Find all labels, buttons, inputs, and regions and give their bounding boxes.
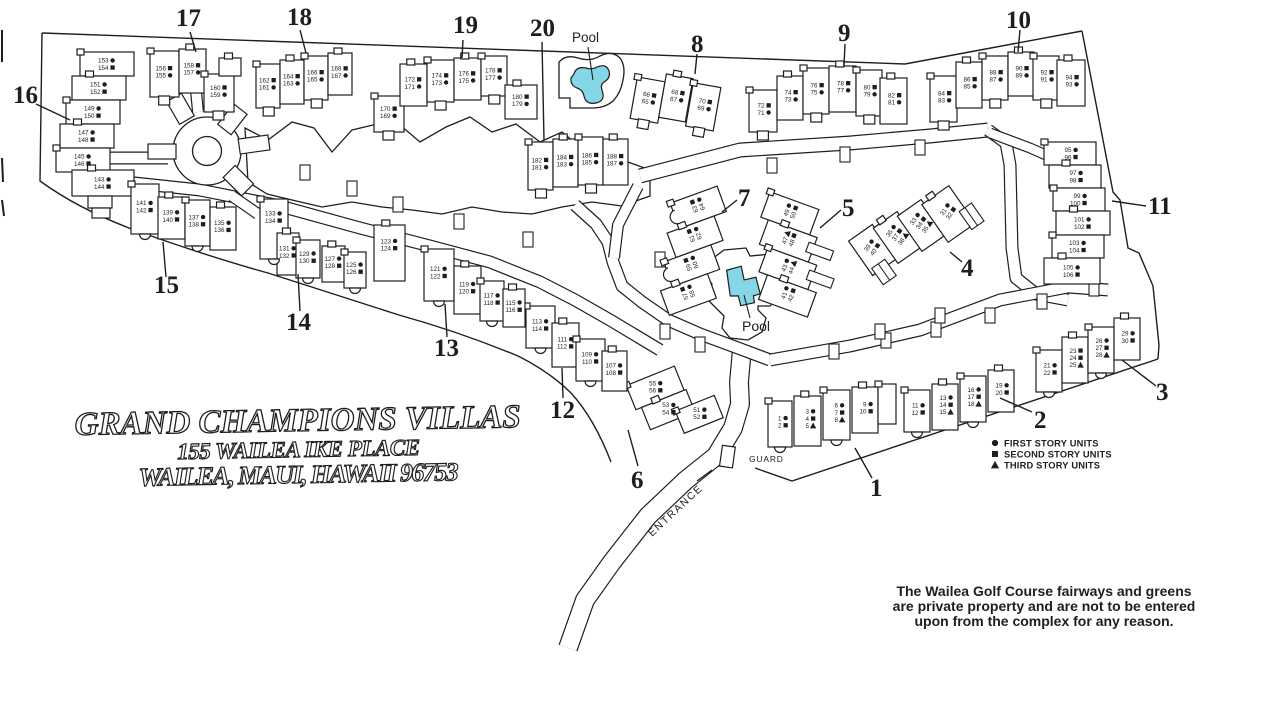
svg-text:7: 7	[738, 185, 751, 212]
svg-text:181: 181	[531, 165, 542, 172]
svg-text:14: 14	[939, 402, 947, 409]
svg-text:72: 72	[757, 103, 765, 110]
svg-text:151: 151	[90, 82, 101, 89]
svg-text:174: 174	[431, 73, 442, 80]
svg-text:FIRST STORY UNITS: FIRST STORY UNITS	[1004, 439, 1099, 449]
svg-text:25: 25	[1069, 362, 1077, 369]
svg-text:17: 17	[176, 5, 201, 32]
svg-text:17: 17	[967, 394, 975, 401]
svg-text:13: 13	[434, 335, 459, 362]
svg-text:148: 148	[78, 137, 89, 144]
svg-text:144: 144	[94, 184, 105, 191]
svg-text:16: 16	[13, 82, 38, 109]
svg-text:173: 173	[431, 80, 442, 87]
svg-text:19: 19	[453, 12, 478, 39]
svg-text:143: 143	[94, 177, 105, 184]
svg-text:WAILEA, MAUI, HAWAII 96753: WAILEA, MAUI, HAWAII 96753	[138, 457, 458, 492]
svg-text:74: 74	[784, 90, 792, 97]
svg-text:18: 18	[287, 4, 312, 31]
svg-text:186: 186	[581, 152, 592, 159]
svg-text:179: 179	[512, 101, 523, 108]
svg-text:52: 52	[693, 414, 701, 421]
svg-text:10: 10	[1006, 7, 1031, 34]
svg-text:157: 157	[183, 70, 194, 77]
svg-text:164: 164	[283, 74, 294, 81]
svg-text:146: 146	[74, 161, 85, 168]
svg-text:155: 155	[155, 73, 166, 80]
svg-text:128: 128	[324, 263, 335, 270]
svg-text:166: 166	[307, 70, 318, 77]
svg-text:132: 132	[279, 253, 290, 260]
svg-text:78: 78	[837, 80, 845, 87]
svg-text:GUARD: GUARD	[749, 454, 784, 464]
svg-text:180: 180	[512, 94, 523, 101]
svg-text:100: 100	[1070, 200, 1081, 207]
svg-text:22: 22	[1043, 370, 1051, 377]
svg-text:130: 130	[299, 258, 310, 265]
svg-text:158: 158	[183, 63, 194, 70]
svg-text:120: 120	[458, 289, 469, 296]
svg-text:5: 5	[805, 423, 809, 430]
svg-text:8: 8	[834, 417, 838, 424]
svg-text:13: 13	[939, 395, 947, 402]
svg-text:2: 2	[1034, 407, 1047, 434]
svg-text:113: 113	[532, 319, 543, 326]
svg-text:11: 11	[912, 403, 919, 410]
svg-text:84: 84	[938, 90, 946, 97]
svg-text:133: 133	[265, 211, 276, 218]
svg-text:23: 23	[1069, 348, 1077, 355]
svg-text:89: 89	[1015, 73, 1023, 80]
svg-text:93: 93	[1065, 82, 1073, 89]
svg-text:upon from the complex for any: upon from the complex for any reason.	[914, 613, 1173, 629]
svg-text:71: 71	[757, 110, 765, 117]
svg-text:175: 175	[458, 78, 469, 85]
svg-text:18: 18	[967, 401, 975, 408]
svg-text:86: 86	[963, 76, 971, 83]
svg-text:24: 24	[1069, 355, 1077, 362]
svg-text:127: 127	[324, 256, 335, 263]
svg-text:27: 27	[1095, 345, 1103, 352]
svg-text:168: 168	[331, 66, 342, 73]
svg-text:90: 90	[1015, 66, 1023, 73]
svg-text:119: 119	[459, 281, 470, 288]
svg-text:187: 187	[606, 161, 617, 168]
svg-text:30: 30	[1121, 338, 1129, 345]
svg-text:are private property and are n: are private property and are not to be e…	[893, 598, 1196, 614]
svg-text:15: 15	[154, 272, 179, 299]
svg-text:16: 16	[967, 387, 975, 394]
svg-text:137: 137	[188, 214, 199, 221]
svg-text:15: 15	[939, 409, 947, 416]
svg-text:121: 121	[430, 266, 441, 273]
svg-text:153: 153	[98, 58, 109, 65]
svg-text:12: 12	[911, 410, 919, 417]
svg-text:147: 147	[78, 130, 89, 137]
svg-text:102: 102	[1074, 224, 1085, 231]
svg-text:129: 129	[299, 251, 310, 258]
svg-text:4: 4	[961, 255, 974, 282]
svg-text:114: 114	[532, 326, 543, 333]
svg-text:6: 6	[631, 467, 644, 494]
svg-text:161: 161	[259, 85, 270, 92]
svg-text:170: 170	[380, 106, 391, 113]
svg-text:85: 85	[963, 84, 971, 91]
svg-text:122: 122	[430, 273, 441, 280]
svg-text:104: 104	[1069, 247, 1080, 254]
svg-text:9: 9	[838, 20, 851, 47]
svg-text:14: 14	[286, 309, 312, 336]
svg-text:156: 156	[155, 65, 166, 72]
svg-text:2: 2	[778, 423, 782, 430]
svg-text:1: 1	[778, 415, 782, 422]
svg-text:96: 96	[1064, 154, 1072, 161]
svg-text:20: 20	[530, 15, 555, 42]
svg-text:91: 91	[1040, 77, 1048, 84]
svg-text:56: 56	[649, 388, 657, 395]
svg-text:Pool: Pool	[572, 30, 599, 45]
svg-text:188: 188	[606, 153, 617, 160]
svg-text:19: 19	[995, 383, 1003, 390]
svg-text:115: 115	[505, 300, 516, 307]
svg-text:81: 81	[888, 100, 896, 107]
svg-text:103: 103	[1069, 240, 1080, 247]
svg-text:10: 10	[859, 409, 867, 416]
svg-text:160: 160	[210, 85, 221, 92]
svg-text:75: 75	[810, 90, 818, 97]
svg-text:20: 20	[995, 390, 1003, 397]
svg-text:136: 136	[214, 227, 225, 234]
svg-text:3: 3	[1156, 379, 1169, 406]
svg-text:125: 125	[346, 262, 357, 269]
svg-text:135: 135	[214, 220, 225, 227]
svg-text:139: 139	[162, 210, 173, 217]
svg-text:The Wailea Golf Course fairway: The Wailea Golf Course fairways and gree…	[896, 583, 1191, 599]
svg-text:165: 165	[307, 77, 318, 84]
svg-text:176: 176	[458, 71, 469, 78]
svg-text:79: 79	[863, 92, 871, 99]
svg-text:112: 112	[557, 344, 568, 351]
svg-text:107: 107	[605, 363, 616, 370]
svg-text:126: 126	[346, 269, 357, 276]
svg-text:76: 76	[810, 82, 818, 89]
svg-text:82: 82	[888, 92, 896, 99]
svg-text:171: 171	[404, 84, 415, 91]
svg-text:83: 83	[938, 98, 946, 105]
svg-text:141: 141	[136, 200, 147, 207]
svg-text:150: 150	[84, 113, 95, 120]
svg-text:131: 131	[279, 246, 290, 253]
svg-text:80: 80	[863, 84, 871, 91]
svg-text:SECOND STORY UNITS: SECOND STORY UNITS	[1004, 450, 1112, 460]
svg-text:9: 9	[863, 401, 867, 408]
svg-text:1: 1	[870, 475, 883, 502]
svg-text:95: 95	[1064, 147, 1072, 154]
svg-text:177: 177	[485, 75, 496, 82]
svg-text:110: 110	[582, 359, 593, 366]
svg-text:138: 138	[188, 222, 199, 229]
svg-text:6: 6	[834, 403, 838, 410]
svg-text:123: 123	[380, 238, 391, 245]
svg-text:8: 8	[691, 31, 704, 58]
svg-text:124: 124	[380, 246, 391, 253]
svg-text:94: 94	[1065, 74, 1073, 81]
svg-text:140: 140	[162, 217, 173, 224]
svg-text:167: 167	[331, 73, 342, 80]
svg-text:26: 26	[1095, 338, 1103, 345]
svg-text:Pool: Pool	[742, 318, 770, 334]
svg-text:154: 154	[98, 65, 109, 72]
svg-text:4: 4	[805, 416, 809, 423]
svg-text:5: 5	[842, 195, 855, 222]
svg-text:98: 98	[1069, 177, 1077, 184]
svg-text:178: 178	[485, 68, 496, 75]
svg-text:88: 88	[989, 70, 997, 77]
svg-text:185: 185	[581, 160, 592, 167]
svg-text:108: 108	[605, 370, 616, 377]
svg-text:111: 111	[557, 337, 567, 344]
svg-text:92: 92	[1040, 70, 1048, 77]
svg-text:117: 117	[483, 293, 494, 300]
svg-text:145: 145	[74, 154, 85, 161]
svg-text:109: 109	[581, 352, 592, 359]
svg-text:106: 106	[1063, 272, 1074, 279]
svg-text:152: 152	[90, 89, 101, 96]
svg-text:21: 21	[1043, 363, 1051, 370]
svg-text:101: 101	[1074, 217, 1085, 224]
svg-text:134: 134	[265, 218, 276, 225]
svg-text:182: 182	[531, 157, 542, 164]
svg-text:169: 169	[380, 113, 391, 120]
svg-text:11: 11	[1148, 193, 1172, 220]
svg-text:7: 7	[834, 410, 838, 417]
svg-text:73: 73	[784, 97, 792, 104]
svg-text:87: 87	[989, 77, 997, 84]
svg-text:162: 162	[259, 78, 270, 85]
svg-text:149: 149	[84, 106, 95, 113]
svg-text:116: 116	[505, 307, 516, 314]
svg-text:183: 183	[556, 162, 567, 169]
svg-text:3: 3	[805, 409, 809, 416]
svg-text:77: 77	[837, 88, 845, 95]
svg-text:54: 54	[662, 409, 670, 416]
svg-text:99: 99	[1073, 193, 1081, 200]
svg-text:163: 163	[283, 81, 294, 88]
svg-text:97: 97	[1069, 170, 1077, 177]
svg-text:12: 12	[550, 397, 575, 424]
svg-text:53: 53	[662, 402, 670, 409]
svg-text:118: 118	[483, 300, 494, 307]
svg-text:159: 159	[210, 92, 221, 99]
svg-text:51: 51	[693, 407, 701, 414]
svg-text:172: 172	[404, 77, 415, 84]
svg-text:105: 105	[1063, 265, 1074, 272]
svg-text:55: 55	[649, 380, 657, 387]
svg-text:29: 29	[1121, 331, 1129, 338]
svg-text:28: 28	[1095, 352, 1103, 359]
svg-text:184: 184	[556, 154, 567, 161]
svg-text:142: 142	[136, 207, 147, 214]
svg-text:THIRD STORY UNITS: THIRD STORY UNITS	[1004, 461, 1100, 471]
